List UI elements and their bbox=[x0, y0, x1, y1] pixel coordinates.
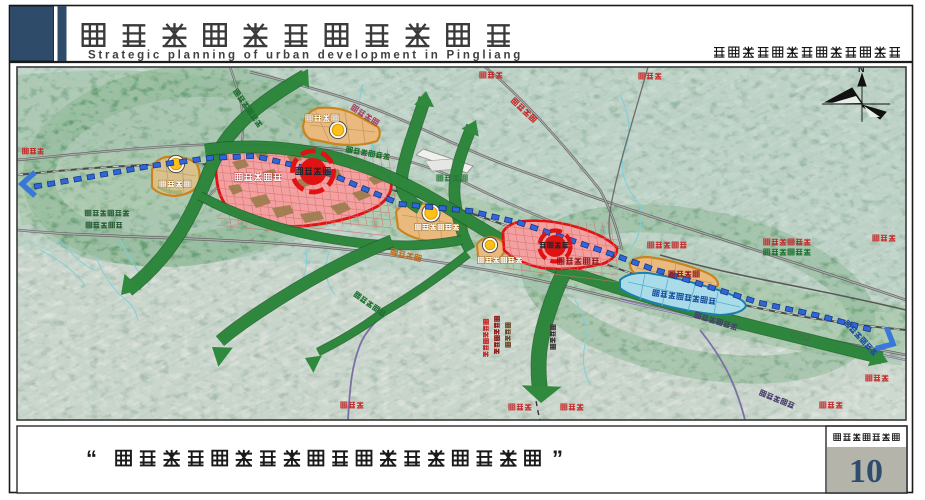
svg-text:”: ” bbox=[552, 446, 563, 471]
svg-text:“: “ bbox=[86, 446, 97, 471]
svg-text:10: 10 bbox=[849, 453, 883, 490]
svg-text:Strategic planning of urban de: Strategic planning of urban development … bbox=[88, 50, 523, 62]
